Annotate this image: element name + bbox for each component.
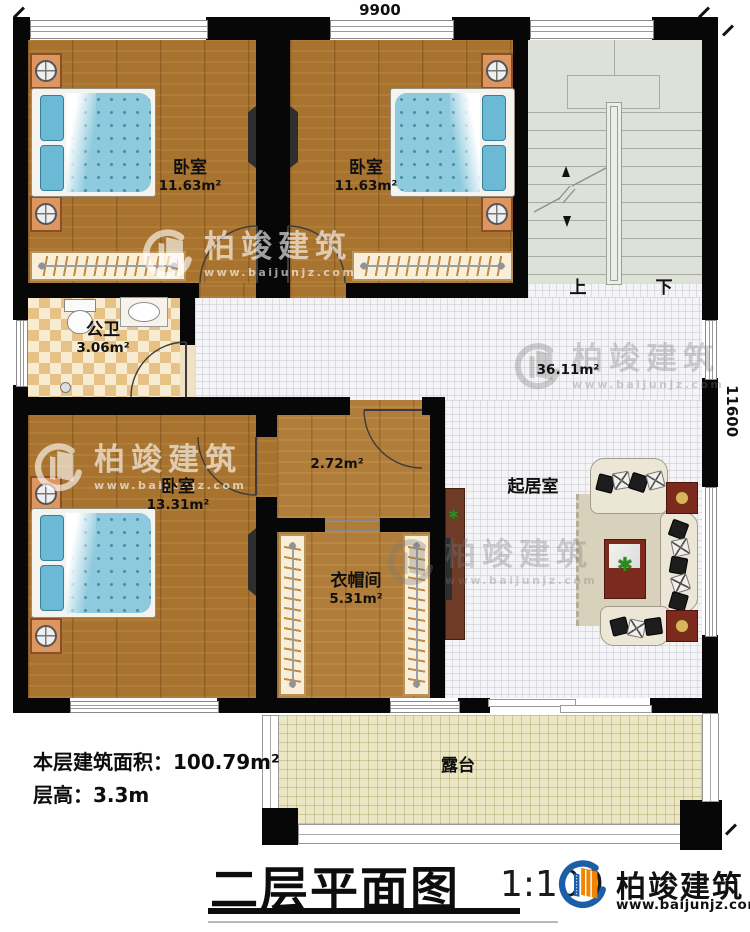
room-label-cloakroom: 衣帽间5.31m² — [329, 572, 382, 607]
window — [70, 701, 219, 713]
stairs — [528, 40, 702, 283]
terrace-railing — [702, 713, 719, 802]
window — [16, 320, 28, 387]
pillow — [482, 145, 506, 191]
hanger-icons — [408, 542, 425, 688]
pillow — [40, 515, 64, 561]
dimension-height: 11600 — [723, 385, 741, 437]
wall — [256, 40, 290, 283]
window — [30, 20, 208, 39]
floor-drain-icon — [60, 382, 71, 393]
wall — [13, 17, 28, 320]
bed — [31, 508, 156, 618]
title-underline — [208, 908, 520, 914]
wardrobe — [352, 251, 513, 281]
bed — [31, 88, 156, 197]
door-threshold — [256, 437, 277, 497]
medallion-icon — [675, 619, 689, 633]
wall — [346, 283, 528, 298]
cushion — [670, 537, 690, 557]
hanger-icons — [38, 256, 178, 276]
nightstand — [481, 196, 513, 232]
room-label-living: 起居室 — [508, 478, 559, 498]
wall — [702, 378, 718, 487]
pillow — [482, 95, 506, 141]
room-label-hallway: 2.72m² — [310, 457, 363, 473]
room-label-bedroom3: 卧室13.31m² — [147, 478, 210, 513]
window — [390, 701, 460, 713]
stairs-down-label: 下 — [656, 279, 673, 299]
title-underline-thin — [208, 921, 558, 923]
room-label-bathroom: 公卫3.06m² — [76, 321, 129, 356]
plant-icon: ✱ — [448, 508, 459, 523]
sofa — [590, 458, 668, 514]
cushion — [645, 470, 666, 491]
lamp-icon — [35, 625, 57, 647]
wall — [217, 698, 390, 713]
dimension-tick — [725, 823, 737, 835]
wall — [650, 698, 718, 713]
lamp-icon — [35, 203, 57, 225]
pillow — [40, 565, 64, 611]
nightstand — [30, 476, 62, 512]
wall — [256, 497, 277, 698]
side-table — [666, 610, 698, 642]
coffee-table: ✱ — [604, 539, 646, 599]
wall — [430, 407, 445, 698]
window — [330, 20, 454, 39]
window — [705, 487, 717, 637]
sink-basin — [128, 302, 160, 322]
wall — [13, 385, 28, 713]
wall — [458, 698, 490, 713]
stair-direction-arrow — [528, 40, 702, 283]
wardrobe — [279, 534, 306, 696]
hanger-icons — [360, 256, 505, 276]
tv — [290, 106, 298, 168]
pillow — [40, 145, 64, 191]
wall — [13, 698, 70, 713]
pillow — [40, 95, 64, 141]
wall — [256, 283, 290, 298]
sliding-door-panel — [560, 705, 652, 713]
wardrobe — [403, 534, 430, 696]
tv — [248, 106, 256, 168]
sofa-loveseat — [600, 606, 670, 646]
nightstand — [30, 53, 62, 89]
lamp-icon — [486, 203, 508, 225]
sofa-chaise — [660, 512, 698, 612]
room-label-bedroom1: 卧室11.63m² — [159, 159, 222, 194]
bed — [390, 88, 515, 197]
terrace-pillar — [680, 800, 722, 850]
brand-url: www.baijunjz.com — [616, 897, 750, 913]
wardrobe — [30, 251, 186, 281]
dimension-width: 9900 — [350, 1, 410, 19]
window — [530, 20, 654, 39]
room-label-bedroom2: 卧室11.63m² — [335, 159, 398, 194]
wall — [256, 415, 277, 437]
lamp-icon — [35, 60, 57, 82]
terrace-pillar — [262, 808, 298, 845]
wall — [206, 17, 330, 40]
window — [705, 320, 717, 380]
wall — [702, 17, 718, 320]
door-arc-bedroom2 — [286, 224, 348, 286]
floor-area-text: 本层建筑面积：100.79m² — [33, 746, 280, 775]
plant-icon: ✱ — [617, 554, 633, 576]
door-arc-hallway — [362, 408, 424, 470]
lamp-icon — [486, 60, 508, 82]
terrace-railing — [298, 824, 682, 844]
stairs-up-label: 上 — [570, 279, 587, 299]
blanket-fold — [66, 513, 96, 613]
brand-logo-icon — [556, 856, 610, 918]
medallion-icon — [675, 491, 689, 505]
nightstand — [30, 618, 62, 654]
cushion — [668, 591, 689, 612]
hall-floor — [195, 297, 702, 400]
tv — [445, 538, 452, 600]
door-arc-bedroom1 — [198, 224, 260, 286]
hanger-icons — [284, 542, 301, 688]
cloakroom-opening — [325, 520, 380, 531]
cushion — [644, 617, 663, 636]
floor-height-text: 层高：3.3m — [33, 779, 149, 808]
floor-plan-sheet: 9900 11600 — [0, 0, 750, 932]
door-arc-bathroom — [129, 340, 189, 400]
lamp-icon — [35, 483, 57, 505]
dimension-tick — [722, 24, 734, 36]
blanket-fold — [450, 93, 480, 192]
wall — [513, 17, 528, 283]
wall — [180, 297, 195, 345]
wall — [380, 518, 430, 532]
stair-landing-floor — [528, 283, 702, 297]
nightstand — [481, 53, 513, 89]
nightstand — [30, 196, 62, 232]
wall — [277, 518, 325, 532]
room-label-terrace: 露台 — [441, 757, 475, 777]
wall — [13, 283, 199, 298]
tv — [248, 528, 256, 596]
room-label-living-area: 36.11m² — [537, 363, 600, 379]
blanket-fold — [66, 93, 96, 192]
side-table — [666, 482, 698, 514]
